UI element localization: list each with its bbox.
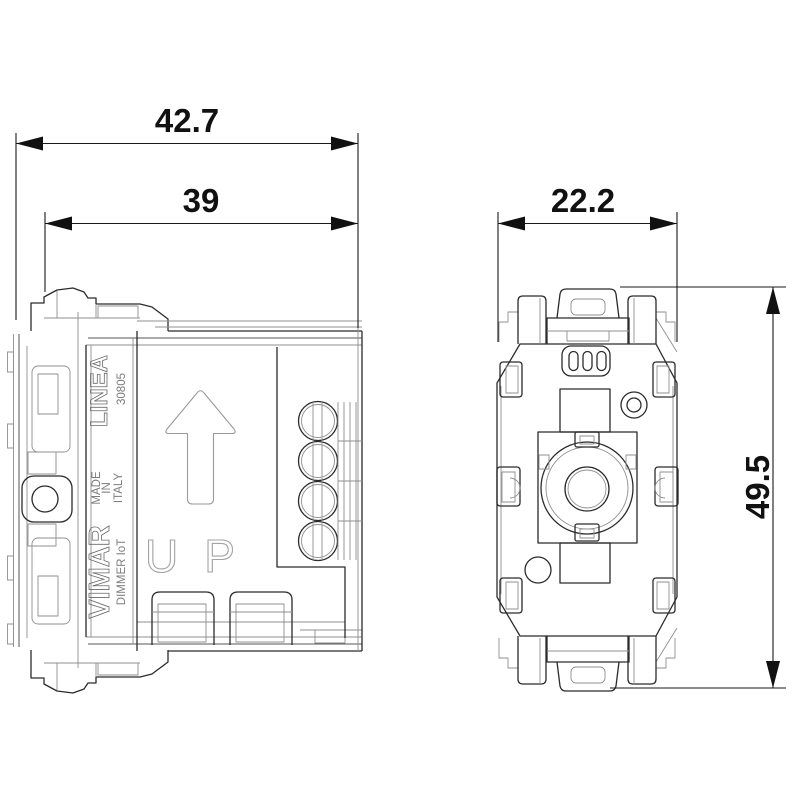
model-label: 30805 [116, 373, 128, 405]
rear-top-tab [518, 289, 656, 344]
drawing-svg: UP LINEA 30805 MADE IN ITALY VIMAR DIMME… [0, 0, 800, 800]
screw-hole [621, 392, 647, 418]
bottom-clip [31, 650, 168, 693]
top-clip [31, 288, 168, 331]
dim-width-label: 22.2 [551, 182, 615, 219]
front-plate [8, 312, 79, 668]
arrowhead-left [45, 217, 72, 231]
arrowhead-bottom [766, 661, 780, 688]
rear-bottom-tab [518, 636, 656, 691]
knob-circle [565, 467, 609, 511]
arrowhead-left [498, 217, 525, 231]
made-line-3: ITALY [113, 473, 125, 504]
knob-assembly [538, 389, 637, 583]
dim-inner-depth-label: 39 [183, 182, 220, 219]
rear-view [497, 289, 678, 691]
arrowhead-right [331, 217, 358, 231]
label-band: LINEA 30805 MADE IN ITALY VIMAR DIMMER I… [84, 355, 128, 619]
technical-drawing: UP LINEA 30805 MADE IN ITALY VIMAR DIMME… [0, 0, 800, 800]
brand-label: VIMAR [84, 525, 116, 619]
arrowhead-right [331, 137, 358, 151]
rear-body-outline [497, 312, 677, 668]
round-hole [525, 557, 551, 583]
arrowhead-right [650, 217, 677, 231]
side-slots [497, 362, 678, 613]
up-label: UP [145, 530, 261, 582]
product-label: DIMMER IoT [116, 539, 128, 605]
terminal-block [299, 401, 363, 561]
dim-height-label: 49.5 [739, 455, 776, 519]
triple-slot-marking [562, 346, 610, 376]
arrowhead-left [16, 137, 43, 151]
dimension-inner-depth: 39 [45, 182, 358, 292]
up-arrow-icon [166, 391, 235, 504]
made-line-2: IN [101, 482, 113, 494]
dim-overall-depth-label: 42.7 [155, 102, 219, 139]
side-view: UP LINEA 30805 MADE IN ITALY VIMAR DIMME… [8, 288, 363, 693]
series-label: LINEA [86, 355, 113, 427]
mounting-claw [22, 366, 72, 624]
arrowhead-top [766, 287, 780, 314]
